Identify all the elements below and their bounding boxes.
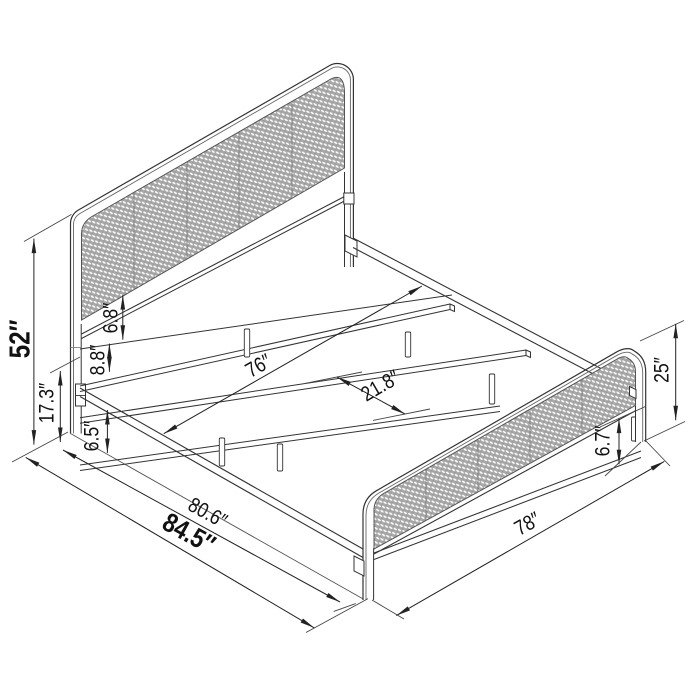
svg-text:6.8″: 6.8″ [99, 303, 123, 334]
svg-text:25″: 25″ [650, 357, 674, 383]
svg-text:6.5″: 6.5″ [80, 421, 104, 452]
svg-text:6.7″: 6.7″ [591, 426, 615, 457]
svg-text:17.3″: 17.3″ [35, 383, 59, 424]
svg-text:8.8″: 8.8″ [86, 345, 110, 376]
svg-text:52″: 52″ [4, 319, 36, 358]
